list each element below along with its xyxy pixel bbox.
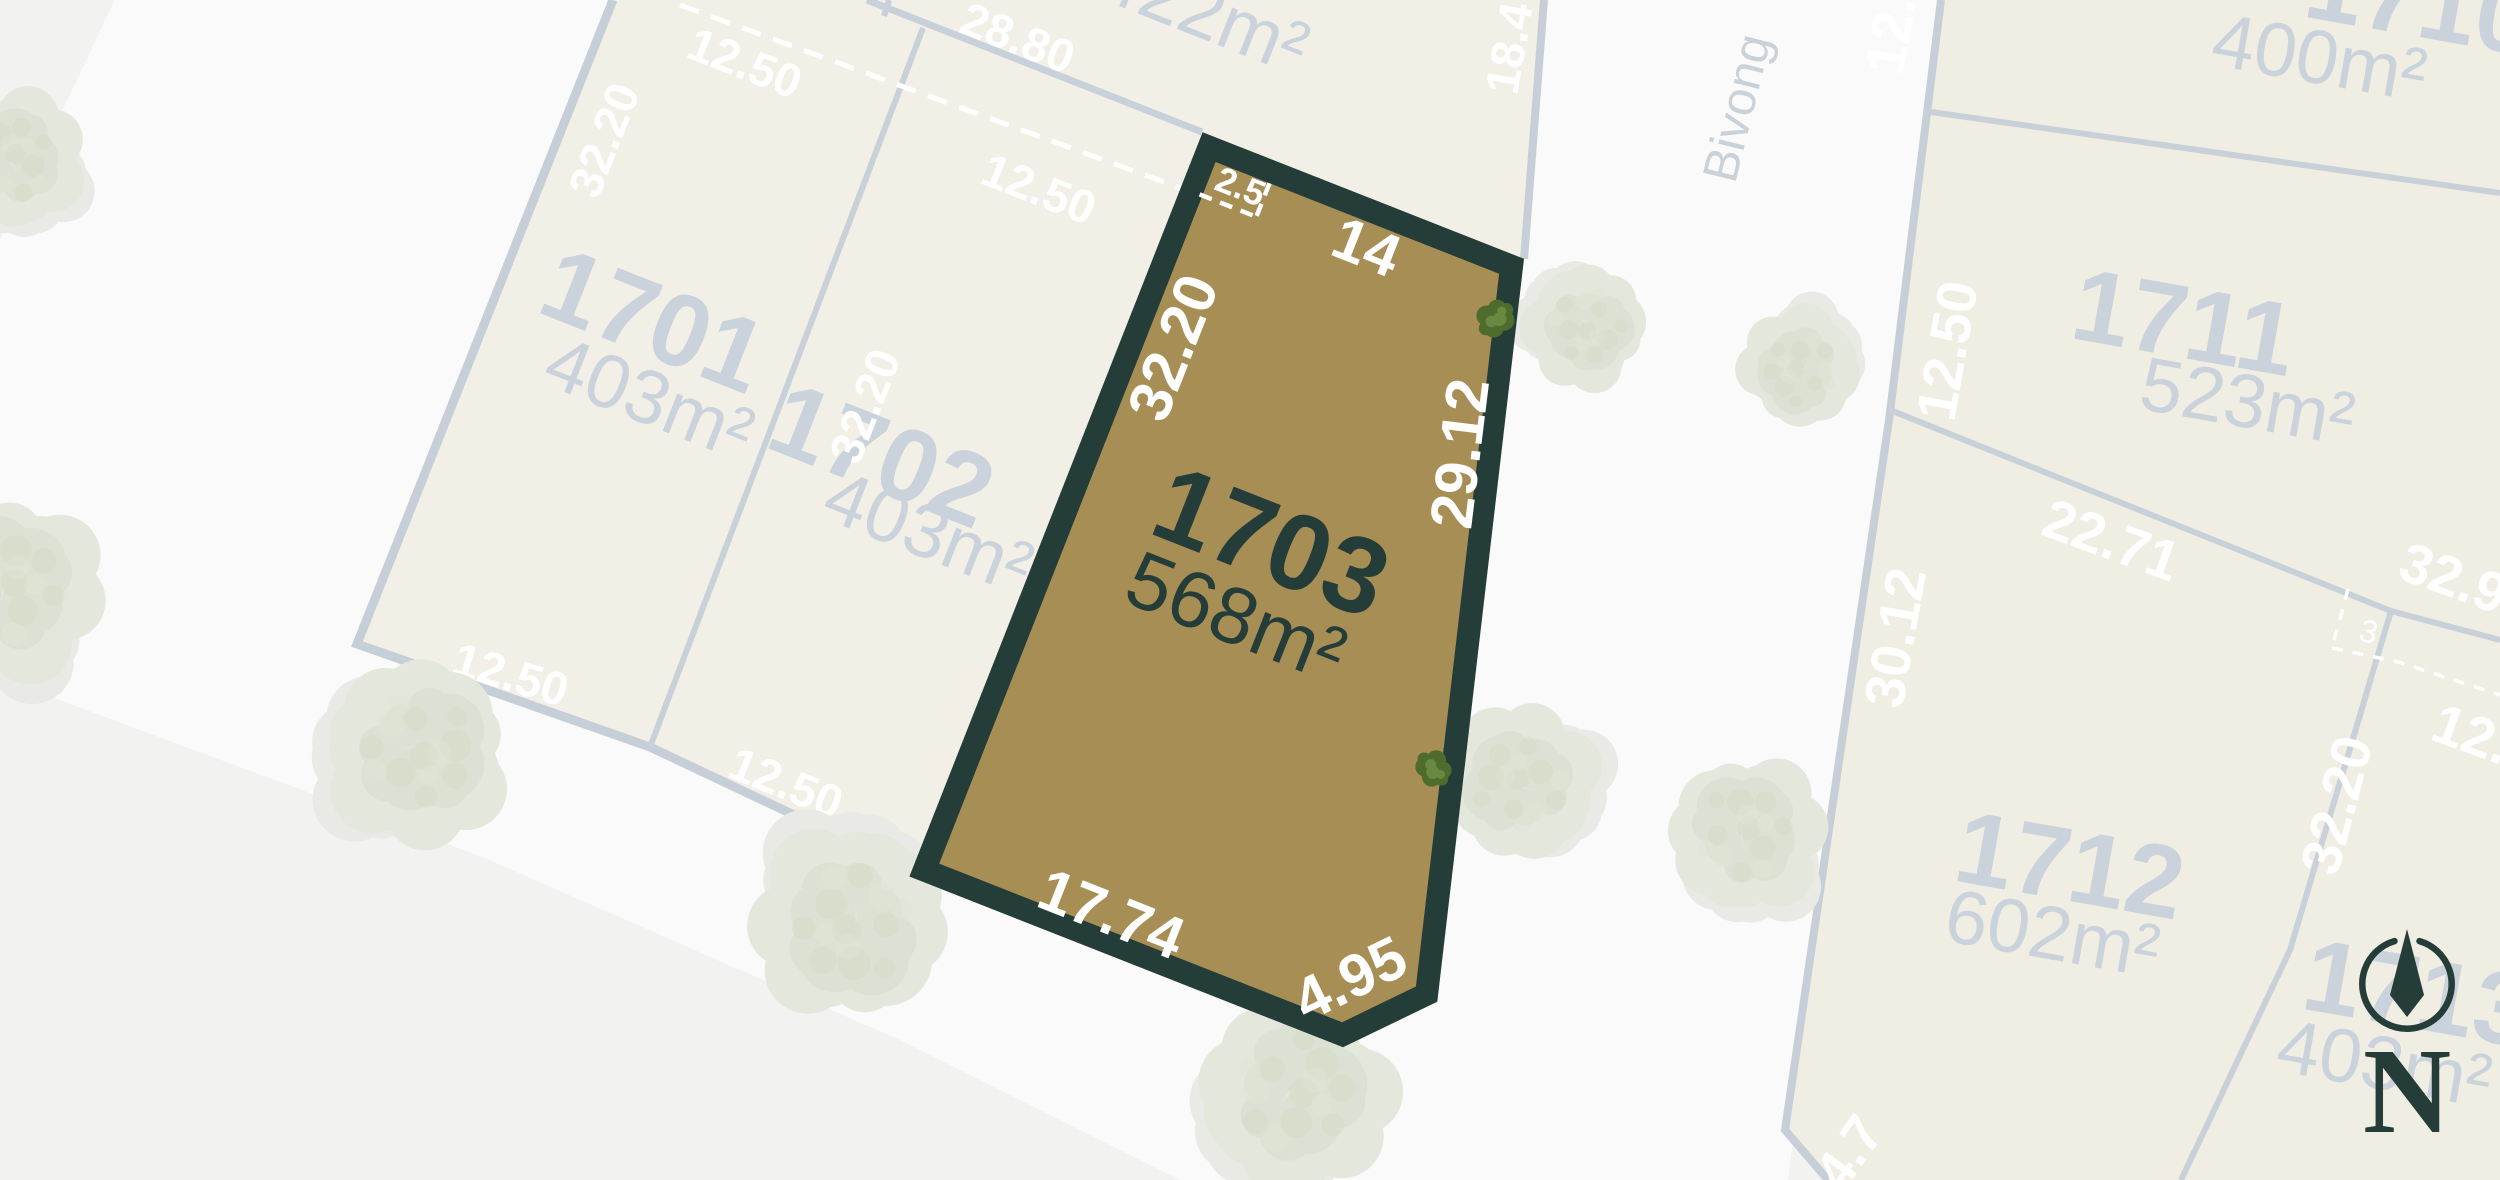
svg-text:N: N [2363,1024,2451,1159]
